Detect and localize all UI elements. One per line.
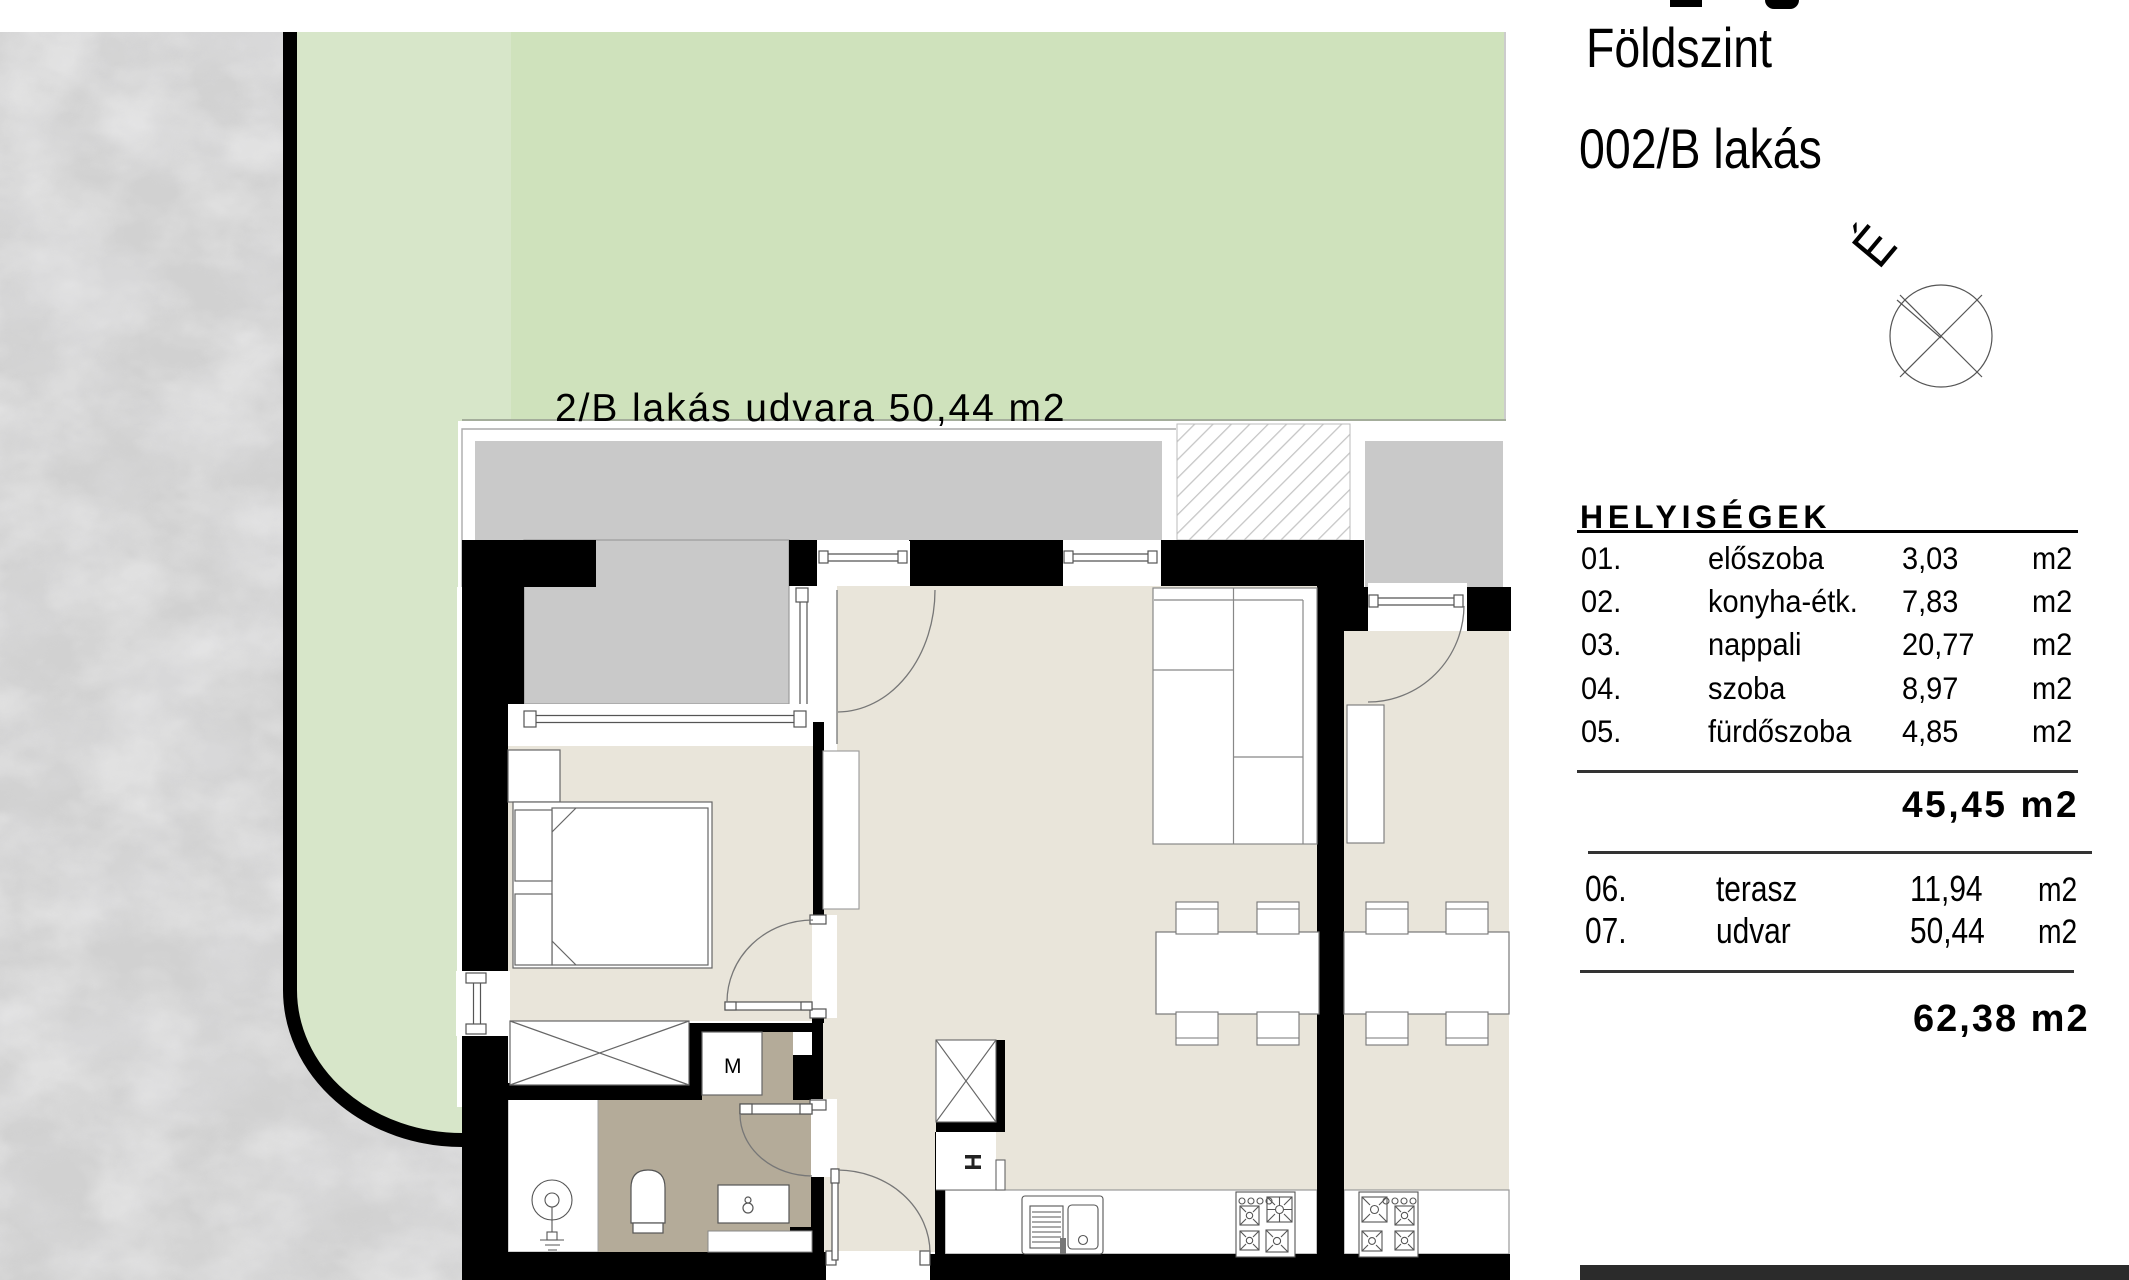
- svg-text:M: M: [724, 1055, 742, 1078]
